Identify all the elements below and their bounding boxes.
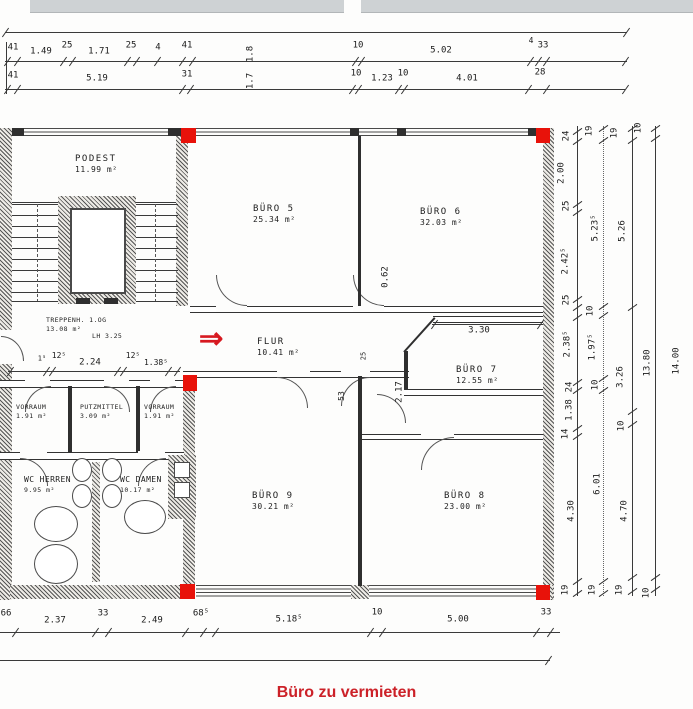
urinal [174,482,190,498]
toilet [102,484,122,508]
dimension-label: 2.37 [44,617,66,626]
stair-centerline [37,204,38,302]
dim-line [5,61,627,62]
room-area: 10.41 m² [257,348,300,359]
room-label-putzmittel: PUTZMITTEL 3.09 m² [80,403,123,421]
plan-graphic [216,305,247,312]
wall-buero7-bottom [404,389,543,396]
dimension-label: 1.38⁵ [144,359,168,367]
plan-graphic [341,370,370,377]
room-area: 3.09 m² [80,412,123,421]
room-name: BÜRO 6 [420,206,463,218]
wall-vorraum-divider [68,386,72,454]
dimension-label: 2.00 [558,162,567,184]
dimension-label: 5.00 [447,616,469,625]
wall-buero7-chamfer [403,317,435,353]
dimension-label: 1.38 [566,399,575,421]
dimension-label: 4.70 [621,500,630,522]
wall-buero7-left [404,351,408,393]
dimension-label: 14.00 [673,347,682,374]
dimension-label: 2.24 [79,359,101,368]
wall-buero5-6 [358,136,361,306]
dimension-label: 10 [398,70,409,79]
room-area: 23.00 m² [444,502,487,513]
red-marker-square [181,128,196,143]
dimension-label: 1.49 [30,48,52,57]
dim-line [5,89,625,90]
dimension-label: 6.01 [594,473,603,495]
dimension-label: 5.18⁵ [275,616,302,625]
dimension-label: 25 [62,42,73,51]
toilet [102,458,122,482]
room-name: VORRAUM [144,403,175,412]
dimension-label: 10 [643,588,652,599]
dimension-label: 19 [586,126,595,137]
room-label-buero8: BÜRO 8 23.00 m² [444,490,487,513]
plan-graphic [353,305,384,312]
dimension-label: 25 [563,295,572,306]
room-name: BÜRO 9 [252,490,295,502]
room-area: 10.17 m² [120,486,162,495]
dimension-label: 25 [563,201,572,212]
dimension-label: 4 [155,44,160,53]
dimension-label: 10 [372,609,383,618]
door-arc [216,275,247,306]
dimension-label: 25 [361,352,368,360]
dimension-label: 25 [126,42,137,51]
highlight-arrow: ⇒ [199,325,223,354]
dimension-label: 53 [338,391,346,401]
room-area: 11.99 m² [75,165,118,176]
room-label-vorraum-left: VORRAUM 1.91 m² [16,403,47,421]
room-note: LH 3.25 [92,332,122,341]
dimension-label: 10 [587,306,596,317]
wall-buero7-top [433,316,543,323]
room-note-lh: LH 3.25 [92,332,122,341]
room-label-buero9: BÜRO 9 30.21 m² [252,490,295,513]
toilet [72,458,92,482]
toilet [72,484,92,508]
room-name: WC DAMEN [120,475,162,486]
room-area: 32.03 m² [420,218,463,229]
room-name: VORRAUM [16,403,47,412]
plan-graphic [344,0,361,13]
dimension-label: 41 [8,72,19,81]
dimension-label: 4.01 [456,75,478,84]
dimension-label: 31 [182,71,193,80]
dim-line [0,632,560,633]
dimension-label: 5.26 [619,220,628,242]
dimension-label: 41 [8,44,19,53]
wall-buero8-9 [358,376,362,586]
wall-pillar [397,128,406,136]
dim-line [8,371,180,372]
room-area: 12.55 m² [456,376,499,387]
room-label-podest: PODEST 11.99 m² [75,153,118,176]
dimension-label: 19 [562,585,571,596]
red-marker-square [183,375,197,391]
wall-bottom-windows [369,585,536,599]
dimension-label: 10 [351,70,362,79]
dimension-label: 19 [589,585,598,596]
dimension-label: 1⁵ [38,356,46,363]
dimension-label: 5.19 [86,75,108,84]
dimension-label: 1.23 [371,75,393,84]
dimension-label: 2.17 [396,381,405,403]
dim-line [655,126,656,596]
urinal [174,462,190,478]
room-label-buero6: BÜRO 6 32.03 m² [420,206,463,229]
dimension-label: 2.49 [141,617,163,626]
dim-line [632,126,633,596]
room-name: PUTZMITTEL [80,403,123,412]
dimension-label: 4 [529,37,534,45]
door-arc [421,437,454,470]
room-label-wc-herren: WC HERREN 9.95 m² [24,475,71,495]
wall-vorraum-divider [136,386,140,454]
dimension-label: 24 [563,131,572,142]
room-area: 9.95 m² [24,486,71,495]
wall-left [0,128,12,600]
scan-edge-band [30,0,693,13]
wall-right [543,128,554,600]
dimension-label: 68⁵ [193,610,209,619]
sink [124,500,166,534]
stair-centerline [155,204,156,302]
floor-plan: PODEST 11.99 m² TREPPENH. 1.OG 13.08 m² … [0,0,693,709]
room-area: 25.34 m² [253,215,296,226]
dimension-label: 2.38⁵ [564,330,573,357]
dim-line [577,126,578,596]
dimension-label: 2.42⁵ [562,247,571,274]
elevator-car [70,208,126,294]
room-label-treppenhaus: TREPPENH. 1.OG 13.08 m² [46,316,106,334]
dimension-label: 19 [611,128,620,139]
room-label-wc-damen: WC DAMEN 10.17 m² [120,475,162,495]
wall-pillar [350,128,359,136]
room-area: 1.91 m² [144,412,175,421]
dimension-label: 0.62 [382,266,391,288]
dimension-label: 1.8 [247,46,256,62]
wall-pillar [10,128,24,136]
dimension-label: 10 [618,421,627,432]
red-marker-square [180,584,195,599]
room-label-buero5: BÜRO 5 25.34 m² [253,203,296,226]
dimension-label: 14 [562,429,571,440]
dimension-label: 13.80 [644,349,653,376]
door-arc [277,377,308,408]
dimension-label: 12⁵ [52,352,66,360]
dimension-label: 28 [535,69,546,78]
red-marker-square [536,585,550,600]
dimension-label: 33 [541,609,552,618]
sink [34,506,78,542]
dimension-label: 1.7 [247,73,256,89]
red-marker-square [536,128,550,143]
dimension-label: 10 [353,42,364,51]
room-name: PODEST [75,153,118,165]
dimension-label: 41 [182,42,193,51]
dimension-label: 3.30 [468,327,490,336]
room-area: 30.21 m² [252,502,295,513]
room-name: BÜRO 5 [253,203,296,215]
sink [34,544,78,584]
wall-bottom-windows [196,585,351,599]
room-name: WC HERREN [24,475,71,486]
wall-top-windows [10,128,553,136]
dimension-label: 4.30 [568,500,577,522]
dim-line [603,126,604,596]
room-area: 1.91 m² [16,412,47,421]
room-label-flur: FLUR 10.41 m² [257,336,300,359]
plan-graphic [277,370,310,377]
plan-graphic [76,298,90,304]
room-name: BÜRO 7 [456,364,499,376]
dimension-label: 19 [616,585,625,596]
wall-wc-center [92,462,100,582]
dimension-label: 66 [1,610,12,619]
wall-pillar [168,128,182,136]
dimension-label: 5.02 [430,47,452,56]
room-name: FLUR [257,336,300,348]
dimension-label: 3.26 [617,366,626,388]
advert-caption: Büro zu vermieten [277,684,417,702]
wall-bottom [10,585,182,599]
dimension-label: 5.23⁵ [592,214,601,241]
dimension-label: 1.71 [88,48,110,57]
wall-pillar [351,585,369,599]
room-label-vorraum-right: VORRAUM 1.91 m² [144,403,175,421]
room-name: TREPPENH. 1.OG [46,316,106,325]
dim-line [0,660,550,661]
dimension-label: 24 [566,382,575,393]
room-name: BÜRO 8 [444,490,487,502]
plan-graphic [104,298,118,304]
dimension-label: 33 [98,610,109,619]
dimension-label: 12⁵ [126,352,140,360]
room-label-buero7: BÜRO 7 12.55 m² [456,364,499,387]
dimension-label: 33 [538,42,549,51]
stairs-left-flight [12,204,60,302]
dim-line [5,32,627,33]
door-arc [1,336,24,361]
dimension-label: 1.97⁵ [589,333,598,360]
